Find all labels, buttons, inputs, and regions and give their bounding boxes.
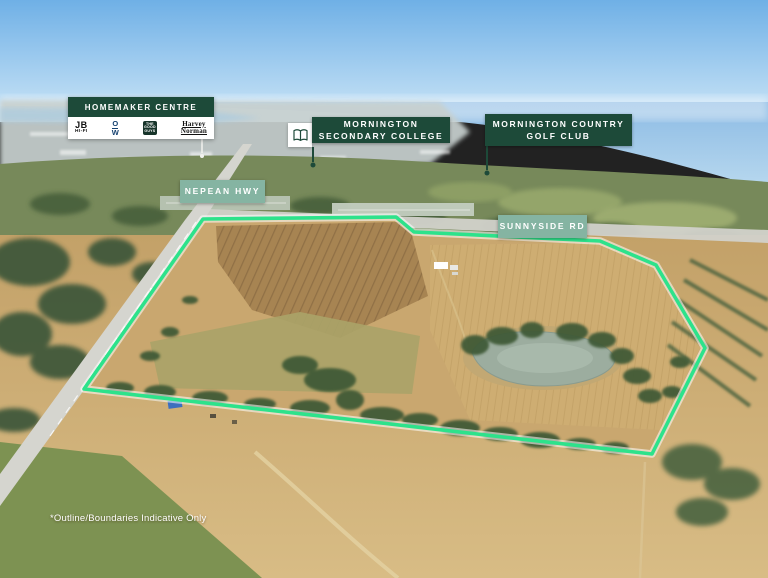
golf-leader-dot (485, 171, 490, 176)
boundaries-disclaimer: *Outline/Boundaries Indicative Only (50, 513, 206, 524)
secondary-college-line2: SECONDARY COLLEGE (312, 130, 450, 142)
golf-club-label: MORNINGTON COUNTRY GOLF CLUB (485, 114, 632, 146)
sunnyside-rd-label-text: SUNNYSIDE RD (498, 215, 587, 238)
good-guys-logo: THE GOOD GUYS (143, 121, 157, 135)
college-leader-dot (311, 163, 316, 168)
nepean-hwy-label: NEPEAN HWY (180, 180, 265, 203)
secondary-college-line1: MORNINGTON (312, 118, 450, 130)
jb-hifi-logo: JB HI-FI (75, 121, 88, 135)
aerial-photo (0, 0, 768, 578)
harvey-norman-logo: Harvey Norman (181, 121, 207, 136)
homemaker-leader-dot (200, 154, 204, 158)
retailer-logos: JB HI-FI O W THE GOOD GUYS Harvey Norman (68, 117, 214, 139)
homemaker-centre-card: HOMEMAKER CENTRE JB HI-FI O W THE GOOD G… (68, 97, 214, 139)
officeworks-logo: O W (112, 120, 119, 137)
good-guys-logo-line3: GUYS (144, 130, 155, 134)
secondary-college-label: MORNINGTON SECONDARY COLLEGE (312, 117, 450, 143)
aerial-property-marketing-image: HOMEMAKER CENTRE JB HI-FI O W THE GOOD G… (0, 0, 768, 578)
harvey-norman-logo-line2: Norman (181, 128, 207, 136)
sunnyside-rd-label: SUNNYSIDE RD (498, 215, 587, 238)
golf-club-line2: GOLF CLUB (485, 130, 632, 142)
golf-club-line1: MORNINGTON COUNTRY (485, 118, 632, 130)
nepean-hwy-label-text: NEPEAN HWY (180, 180, 265, 203)
book-icon-glyph (293, 129, 308, 142)
book-icon (288, 123, 312, 147)
homemaker-centre-title: HOMEMAKER CENTRE (68, 97, 214, 117)
jb-hifi-logo-bottom: HI-FI (75, 130, 88, 135)
officeworks-logo-bottom: W (112, 129, 119, 137)
